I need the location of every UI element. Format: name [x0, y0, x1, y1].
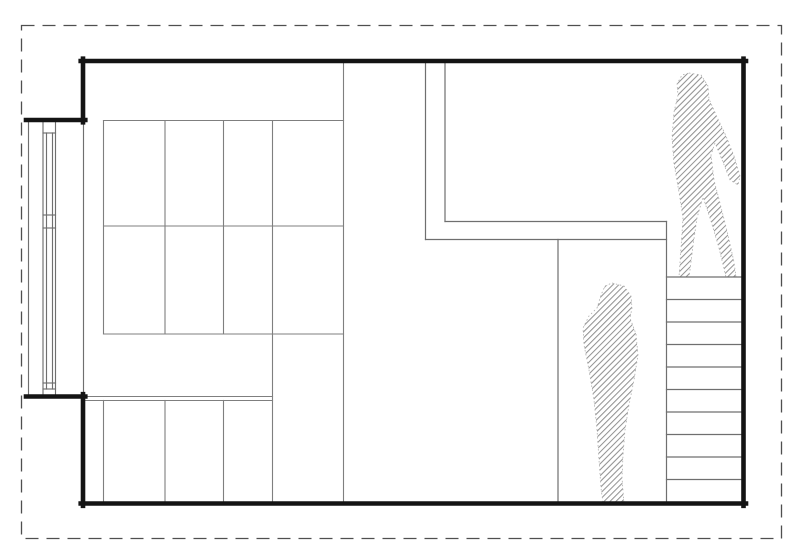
architectural-section-drawing-page — [0, 0, 800, 550]
drawing-canvas — [0, 0, 800, 550]
section-drawing-svg — [0, 0, 800, 550]
